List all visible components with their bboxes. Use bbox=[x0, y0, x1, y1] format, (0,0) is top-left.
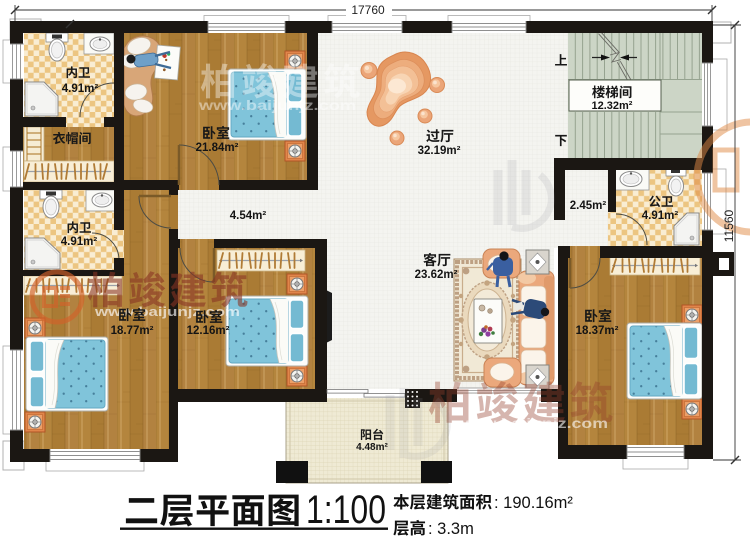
svg-text:www.baijunjz.com: www.baijunjz.com bbox=[454, 415, 608, 431]
svg-text:12.32m²: 12.32m² bbox=[592, 100, 633, 112]
svg-text:12.16m²: 12.16m² bbox=[187, 325, 230, 337]
svg-text:: 190.16m²: : 190.16m² bbox=[494, 494, 573, 512]
svg-text:32.19m²: 32.19m² bbox=[418, 145, 461, 157]
svg-text:1:100: 1:100 bbox=[306, 488, 386, 532]
svg-text:4.54m²: 4.54m² bbox=[230, 210, 267, 222]
svg-text:2.45m²: 2.45m² bbox=[570, 200, 607, 212]
svg-text:18.37m²: 18.37m² bbox=[576, 325, 619, 337]
svg-text:21.84m²: 21.84m² bbox=[196, 142, 239, 154]
svg-text:: 3.3m: : 3.3m bbox=[428, 520, 474, 538]
svg-text:17760: 17760 bbox=[351, 3, 385, 17]
svg-text:18.77m²: 18.77m² bbox=[111, 325, 154, 337]
svg-text:4.91m²: 4.91m² bbox=[61, 236, 98, 248]
svg-text:4.91m²: 4.91m² bbox=[62, 83, 99, 95]
svg-text:4.48m²: 4.48m² bbox=[356, 442, 388, 453]
svg-text:www.baijunjz.com: www.baijunjz.com bbox=[198, 97, 356, 113]
svg-text:23.62m²: 23.62m² bbox=[415, 269, 458, 281]
svg-text:11560: 11560 bbox=[722, 209, 736, 242]
svg-text:4.91m²: 4.91m² bbox=[642, 210, 679, 222]
